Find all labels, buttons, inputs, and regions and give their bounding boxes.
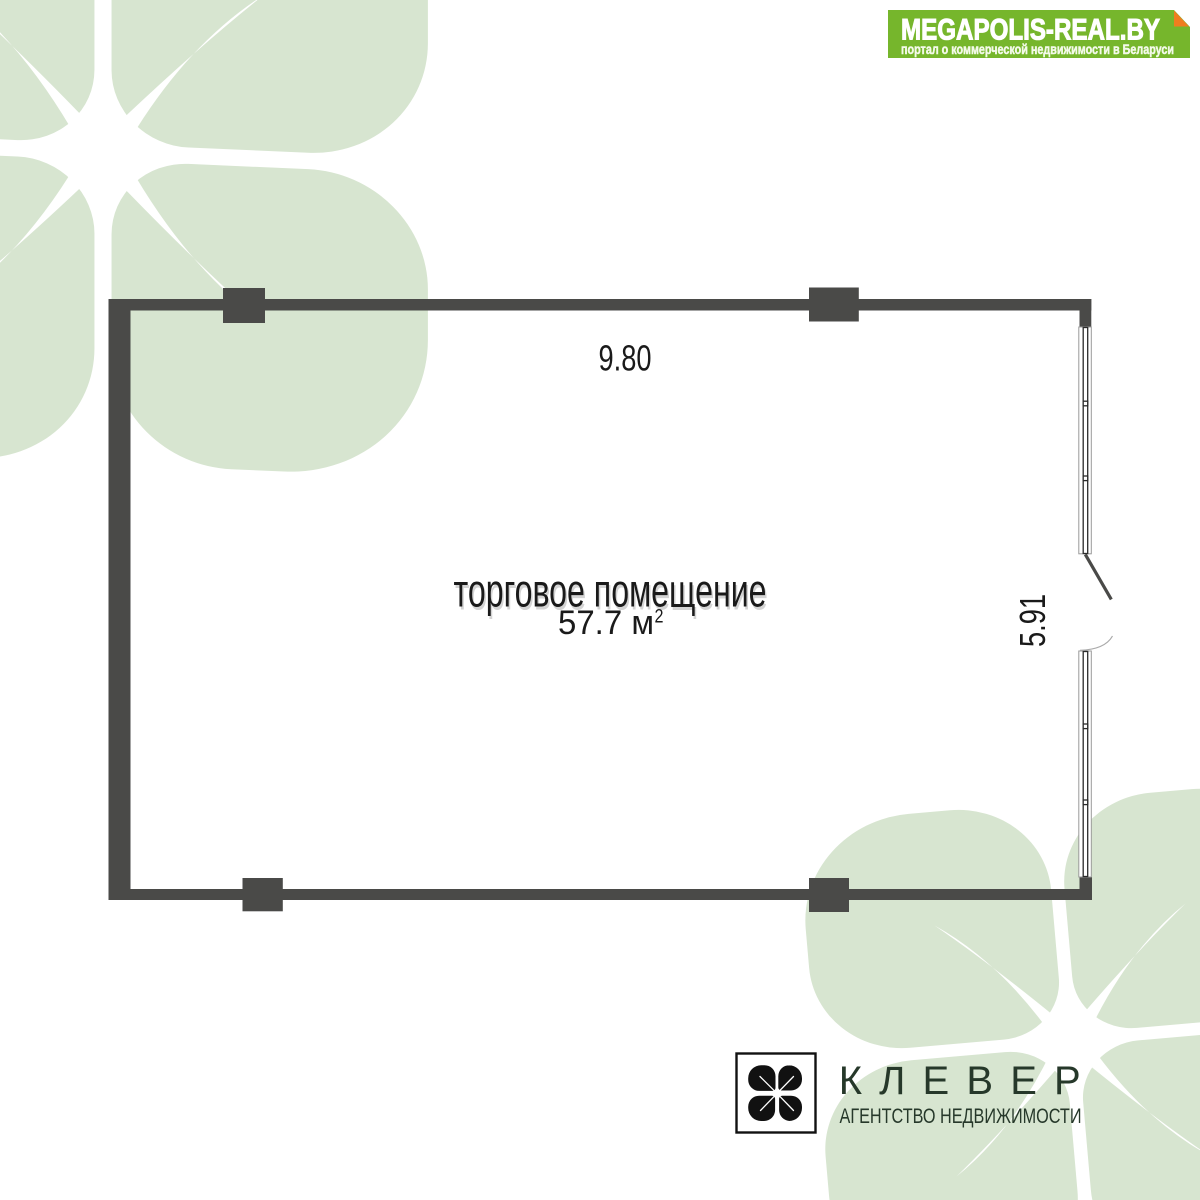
svg-text:9.80: 9.80	[599, 338, 652, 379]
svg-text:АГЕНТСТВО НЕДВИЖИМОСТИ: АГЕНТСТВО НЕДВИЖИМОСТИ	[840, 1105, 1082, 1128]
svg-text:57.7 м: 57.7 м	[558, 604, 654, 642]
svg-text:5.91: 5.91	[1012, 594, 1053, 647]
svg-text:портал о коммерческой недвижим: портал о коммерческой недвижимости в Бел…	[901, 41, 1174, 57]
svg-text:2: 2	[655, 607, 664, 628]
